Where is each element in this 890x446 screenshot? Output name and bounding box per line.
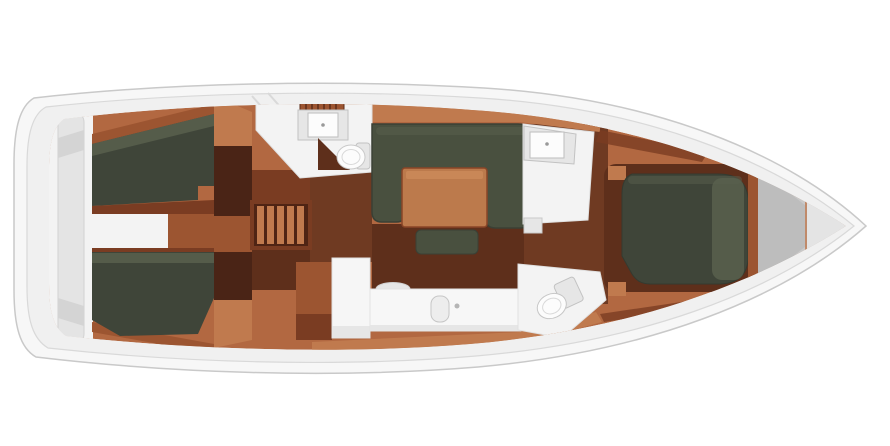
engine-room-cabinet (168, 214, 214, 252)
table-highlight (406, 171, 483, 179)
galley-sink (431, 296, 449, 322)
settee-highlight (376, 127, 526, 135)
faucet (455, 304, 460, 309)
sink-drain (545, 142, 549, 146)
nav-locker (296, 314, 332, 340)
fridge-shade (332, 326, 370, 338)
stair-tread (287, 206, 294, 244)
toilet-bowl (337, 145, 365, 169)
saloon-bench (416, 230, 478, 254)
berth-highlight (628, 176, 742, 184)
companionway (250, 200, 312, 250)
stair-tread (277, 206, 284, 244)
bedside-shelf (608, 282, 626, 296)
sole-galley-side (310, 172, 372, 262)
counter-front-shade (370, 325, 521, 331)
transom (49, 106, 93, 350)
bedside-shelf (608, 166, 626, 180)
yacht-layout-plan (0, 0, 890, 446)
stair-tread (257, 206, 264, 244)
bulkhead-cabinet (214, 216, 252, 252)
nav-seat (296, 262, 332, 314)
berth-port-aft (92, 252, 214, 336)
stair-tread (297, 206, 304, 244)
forward-head (523, 124, 594, 233)
stair-tread (267, 206, 274, 244)
shower-grate (524, 218, 542, 233)
boat-plan-canvas (0, 0, 890, 446)
sink-drain (321, 123, 325, 127)
berth-headboard (748, 164, 758, 288)
cabin-wardrobe (214, 298, 252, 348)
berth-pillows (712, 178, 744, 280)
berth-port-aft-highlight (92, 253, 214, 263)
